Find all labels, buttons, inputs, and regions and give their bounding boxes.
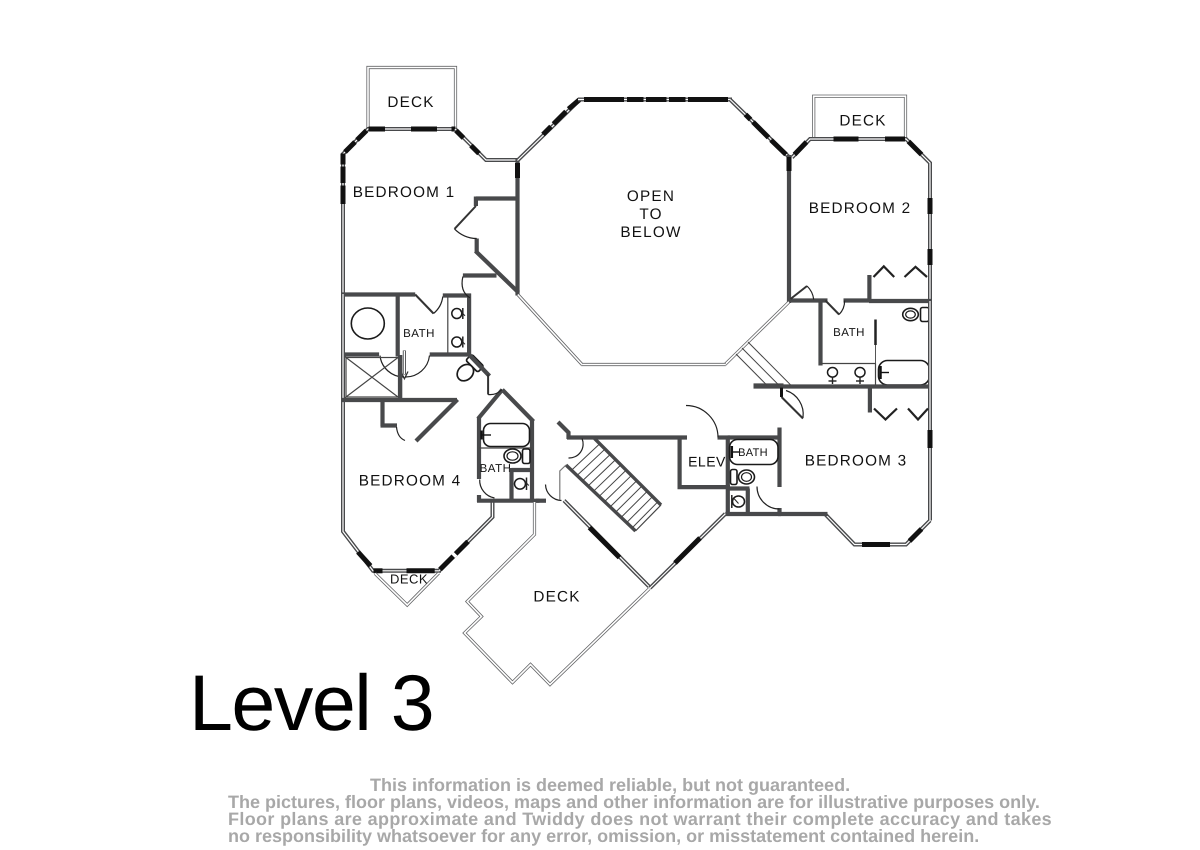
svg-text:TO: TO bbox=[639, 206, 662, 223]
svg-text:BATH: BATH bbox=[480, 463, 512, 475]
svg-text:ELEV: ELEV bbox=[688, 454, 726, 470]
svg-text:OPEN: OPEN bbox=[627, 188, 675, 205]
svg-text:DECK: DECK bbox=[533, 589, 580, 606]
svg-text:BEDROOM 3: BEDROOM 3 bbox=[805, 453, 908, 470]
svg-text:BELOW: BELOW bbox=[620, 224, 681, 241]
svg-text:BATH: BATH bbox=[738, 447, 768, 459]
svg-text:Level 3: Level 3 bbox=[189, 658, 433, 747]
svg-text:BEDROOM 1: BEDROOM 1 bbox=[353, 184, 456, 201]
svg-text:BEDROOM 2: BEDROOM 2 bbox=[809, 200, 912, 217]
svg-text:BATH: BATH bbox=[403, 328, 435, 340]
svg-text:BEDROOM 4: BEDROOM 4 bbox=[359, 473, 462, 490]
svg-text:DECK: DECK bbox=[387, 94, 434, 111]
svg-text:DECK: DECK bbox=[390, 572, 428, 587]
svg-text:DECK: DECK bbox=[839, 113, 886, 130]
svg-text:no responsibility whatsoever f: no responsibility whatsoever for any err… bbox=[228, 826, 979, 846]
svg-text:BATH: BATH bbox=[833, 327, 865, 339]
